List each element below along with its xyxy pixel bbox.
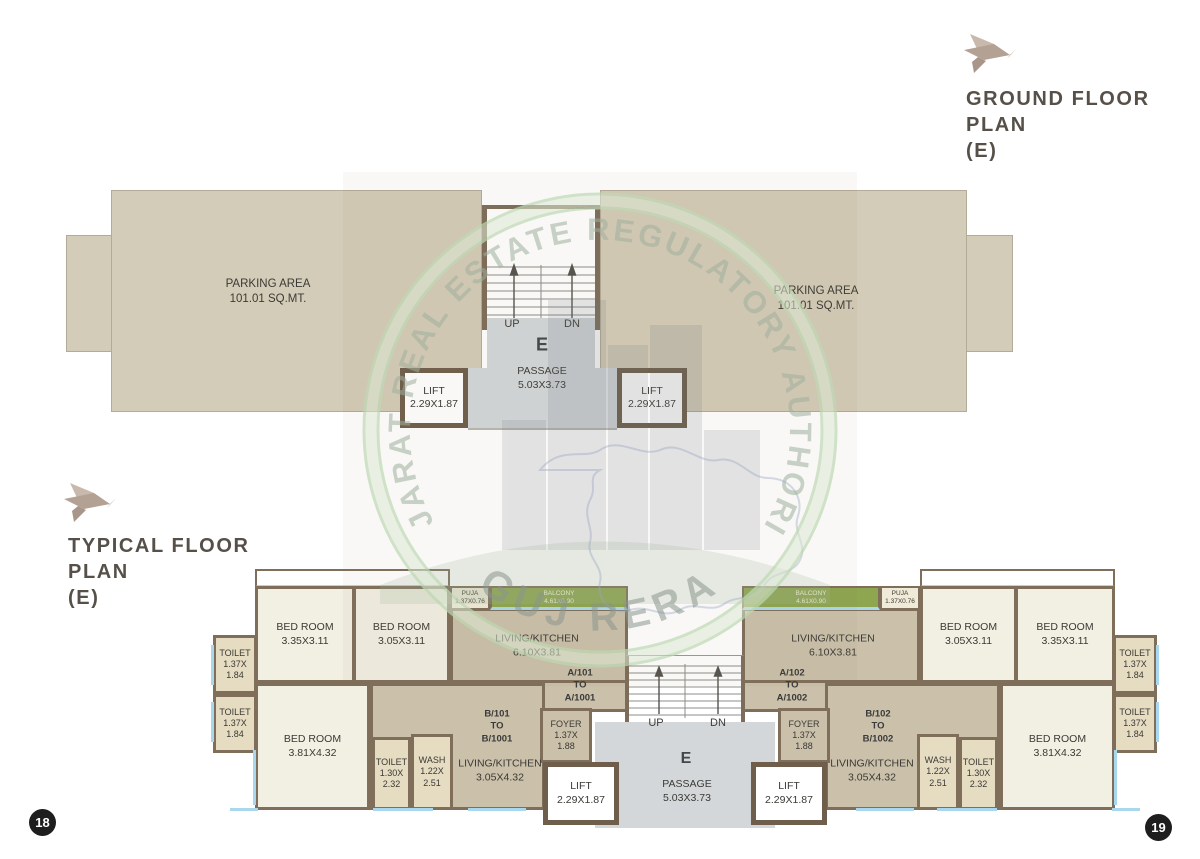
- typical-wing-label: E: [681, 750, 692, 768]
- room-bedroom-right-2: BED ROOM3.35X3.11: [1015, 586, 1115, 683]
- label-unit-b-left: B/101TOB/1001: [482, 708, 513, 745]
- room-bedroom-right-3: BED ROOM3.81X4.32: [1000, 683, 1115, 810]
- ground-wing-label: E: [536, 335, 548, 356]
- parking-area-right-label: PARKING AREA 101.01 SQ.MT.: [774, 284, 859, 314]
- window-segment: [211, 702, 214, 742]
- typical-passage: [595, 722, 775, 828]
- window-segment: [1156, 702, 1159, 742]
- room-toilet-left-3: TOILET1.30X2.32: [372, 737, 411, 810]
- room-toilet-right-3: TOILET1.30X2.32: [959, 737, 998, 810]
- window-segment: [211, 645, 214, 685]
- label-living-kitchen-b-left: LIVING/KITCHEN3.05X4.32: [458, 757, 541, 784]
- room-balcony-right: BALCONY4.61X0.90: [742, 586, 880, 610]
- label-unit-b-right: B/102TOB/1002: [863, 708, 894, 745]
- label-living-kitchen-b-right: LIVING/KITCHEN3.05X4.32: [830, 757, 913, 784]
- room-wash-left: WASH1.22X2.51: [411, 734, 453, 810]
- page-number-right: 19: [1145, 814, 1172, 841]
- label-unit-a-right: A/102TOA/1002: [777, 667, 808, 704]
- typical-stairwell: [625, 655, 745, 722]
- window-segment: [937, 808, 997, 811]
- room-wash-right: WASH1.22X2.51: [917, 734, 959, 810]
- window-segment: [373, 808, 433, 811]
- room-bedroom-right-1: BED ROOM3.05X3.11: [920, 586, 1017, 683]
- room-toilet-right-upper: TOILET1.37X1.84: [1113, 635, 1157, 694]
- floor-plan-page: GROUND FLOOR PLAN (E) PARKING AREA 101.0…: [0, 0, 1200, 859]
- window-segment: [253, 750, 256, 805]
- label-unit-a-left: A/101TOA/1001: [565, 667, 596, 704]
- room-puja-right: PUJA1.37X0.76: [880, 586, 920, 610]
- room-toilet-right-lower: TOILET1.37X1.84: [1113, 694, 1157, 753]
- window-segment: [1114, 750, 1117, 805]
- label-living-kitchen-a-right: LIVING/KITCHEN6.10X3.81: [791, 632, 874, 659]
- room-bedroom-left-3: BED ROOM3.81X4.32: [255, 683, 370, 810]
- room-balcony-left: BALCONY4.61X0.90: [490, 586, 628, 610]
- page-number-left: 18: [29, 809, 56, 836]
- room-bedroom-left-1: BED ROOM3.35X3.11: [255, 586, 355, 683]
- room-lift-left: LIFT2.29X1.87: [543, 762, 619, 825]
- window-segment: [1112, 808, 1140, 811]
- typical-passage-label: PASSAGE 5.03X3.73: [662, 778, 711, 806]
- ground-up-label: UP: [504, 318, 519, 330]
- window-segment: [856, 808, 914, 811]
- typical-stairs: [629, 656, 741, 722]
- typical-dn-label: DN: [710, 717, 726, 729]
- room-toilet-left-lower: TOILET1.37X1.84: [213, 694, 257, 753]
- room-foyer-right: FOYER1.37X1.88: [778, 708, 830, 763]
- parking-area-left-label: PARKING AREA 101.01 SQ.MT.: [226, 277, 311, 307]
- room-foyer-left: FOYER1.37X1.88: [540, 708, 592, 763]
- window-segment: [468, 808, 526, 811]
- ground-dn-label: DN: [564, 318, 580, 330]
- room-toilet-left-upper: TOILET1.37X1.84: [213, 635, 257, 694]
- window-segment: [1156, 645, 1159, 685]
- ground-lift-left: LIFT2.29X1.87: [400, 368, 468, 428]
- window-segment: [230, 808, 258, 811]
- room-lift-right: LIFT2.29X1.87: [751, 762, 827, 825]
- ground-passage-label: PASSAGE 5.03X3.73: [517, 365, 566, 393]
- label-living-kitchen-a-left: LIVING/KITCHEN6.10X3.81: [495, 632, 578, 659]
- typical-up-label: UP: [648, 717, 663, 729]
- room-puja-left: PUJA1.37X0.76: [450, 586, 490, 610]
- room-bedroom-left-2: BED ROOM3.05X3.11: [353, 586, 450, 683]
- typical-floor-plan: UP DN E PASSAGE 5.03X3.73 TOILET1.37X1.8…: [0, 0, 1200, 859]
- ground-lift-right: LIFT2.29X1.87: [617, 368, 687, 428]
